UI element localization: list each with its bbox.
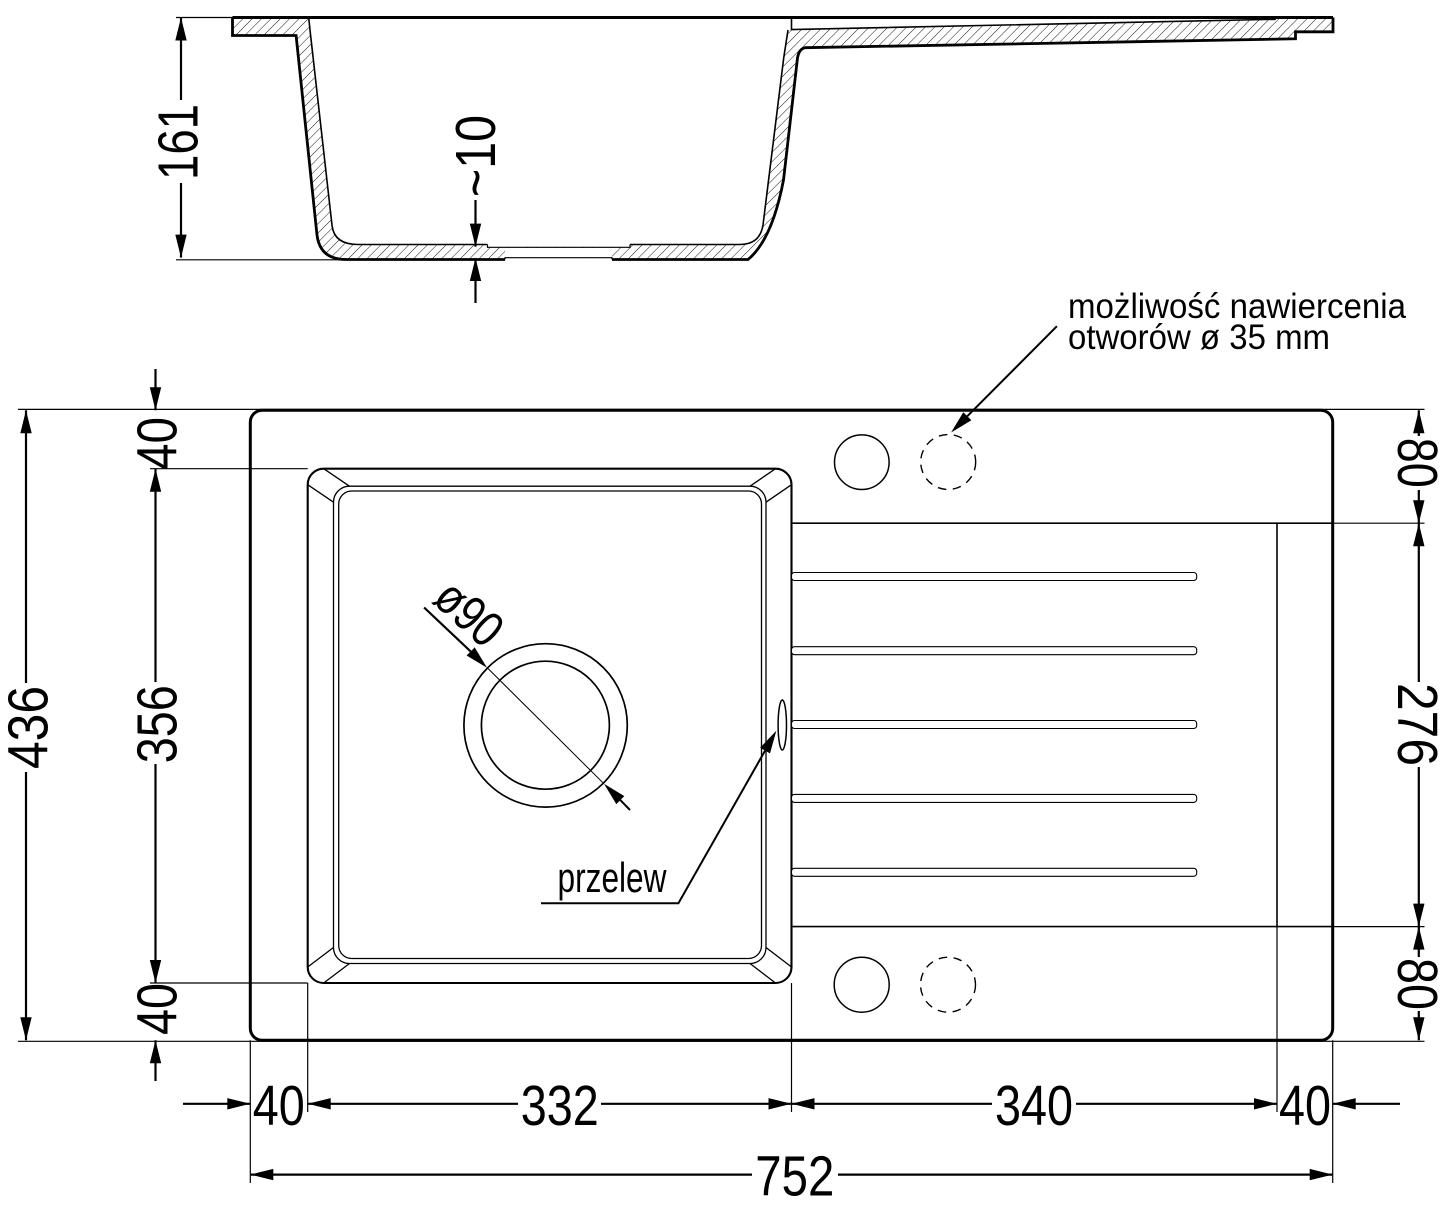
svg-text:332: 332 [521, 1074, 599, 1138]
svg-text:80: 80 [1385, 438, 1447, 488]
svg-text:ø90: ø90 [424, 568, 515, 658]
svg-text:40: 40 [126, 417, 190, 470]
svg-text:276: 276 [1385, 683, 1447, 766]
svg-text:40: 40 [1279, 1074, 1331, 1138]
svg-text:otworów ø 35 mm: otworów ø 35 mm [1068, 318, 1330, 357]
svg-text:40: 40 [253, 1074, 305, 1138]
svg-text:436: 436 [0, 686, 60, 769]
svg-text:356: 356 [125, 685, 189, 763]
svg-text:752: 752 [755, 1145, 834, 1209]
svg-text:161: 161 [146, 104, 210, 180]
svg-text:80: 80 [1385, 958, 1447, 1010]
svg-text:340: 340 [995, 1074, 1073, 1138]
svg-text:40: 40 [126, 983, 190, 1035]
svg-text:przelew: przelew [558, 854, 667, 901]
svg-text:~10: ~10 [444, 115, 508, 197]
